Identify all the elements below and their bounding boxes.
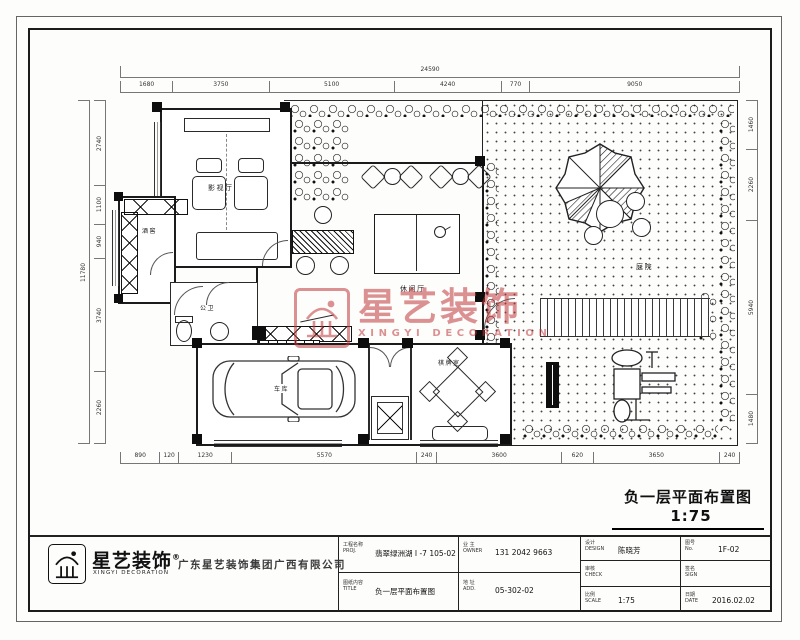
outdoor-chair-icon <box>632 218 651 237</box>
room-label-garage: 车库 <box>272 384 291 393</box>
toilet-icon <box>176 320 192 342</box>
outdoor-table-icon <box>596 200 624 228</box>
tb-label: 图纸内容TITLE <box>343 580 363 592</box>
sink-icon <box>210 322 229 341</box>
dim-top-overall: 24590 <box>120 66 740 78</box>
tb-value-number: 1F-02 <box>718 545 739 554</box>
company-wordmark-en: XINGYI DECORATION <box>93 570 169 576</box>
dim-top-segments: 16803750510042407709050 <box>120 81 740 93</box>
window-icon <box>420 440 498 447</box>
cabinet-icon <box>432 426 488 441</box>
tb-label: 设计DESIGN <box>585 540 604 552</box>
dim-right-segments: 1460226059401480 <box>746 100 758 444</box>
armchair-icon <box>196 158 222 173</box>
bar-stool-icon <box>314 206 332 224</box>
tb-value-designer: 陈晓芳 <box>618 545 641 556</box>
wine-rack-icon <box>124 199 188 215</box>
site-boundary-top <box>284 100 484 101</box>
dim-left-segments: 2740110094037402260 <box>94 100 106 444</box>
tb-value-address: 05-302-02 <box>495 586 534 595</box>
outdoor-chair-icon <box>584 226 603 245</box>
tb-value-scale: 1:75 <box>618 596 635 605</box>
room-label-lounge: 休闲厅 <box>400 284 426 294</box>
tb-label: 比例SCALE <box>585 592 601 604</box>
tb-label: 审核CHECK <box>585 566 602 578</box>
garage-door-icon <box>214 440 342 447</box>
tb-label: 工程名称PROJ. <box>343 542 363 554</box>
pergola-deck-icon <box>540 298 710 337</box>
sheet-title-text: 负一层平面布置图 <box>624 488 752 506</box>
tb-value-owner: 131 2042 9663 <box>495 548 552 557</box>
outdoor-chair-icon <box>626 192 645 211</box>
projector-screen-icon <box>184 118 270 132</box>
room-label-cellar: 酒窖 <box>142 226 157 235</box>
company-name: 广东星艺装饰集团广西有限公司 <box>178 557 346 572</box>
bar-stool-icon <box>296 256 315 275</box>
room-label-media: 影视厅 <box>208 183 234 193</box>
tb-label: 地 址ADD. <box>463 580 476 592</box>
tb-value-project: 翡翠绿洲湖 I -7 105-02 <box>375 548 456 559</box>
gym-machine-icon <box>592 344 678 426</box>
plants-right-icon <box>718 117 735 429</box>
tb-value-title: 负一层平面布置图 <box>375 586 435 597</box>
company-wordmark-cn: 星艺装饰® <box>92 546 181 573</box>
wine-rack-icon <box>121 212 138 294</box>
sheet-title: 负一层平面布置图 1:75 <box>612 486 764 530</box>
company-logo-icon <box>48 544 86 584</box>
drawing-sheet: 24590 16803750510042407709050 8901201230… <box>0 0 800 640</box>
window-icon <box>112 210 119 286</box>
dim-left-overall: 11780 <box>78 100 90 444</box>
window-icon <box>154 122 161 196</box>
sheet-scale: 1:75 <box>670 507 711 525</box>
tb-label: 日期DATE <box>685 592 698 604</box>
tb-label: 图号No. <box>685 540 695 552</box>
dim-bottom-segments: 8901201230557024036006203650240 <box>120 452 740 464</box>
tb-label: 业 主OWNER <box>463 542 482 554</box>
bar-stool-icon <box>330 256 349 275</box>
bar-counter-icon <box>292 230 354 254</box>
armchair-icon <box>238 158 264 173</box>
kettle-icon <box>434 226 446 238</box>
tb-label: 签名SIGN <box>685 566 697 578</box>
plants-top-icon <box>288 102 734 117</box>
table-tennis-table-icon <box>374 214 460 274</box>
room-label-yard: 庭院 <box>636 262 653 272</box>
tb-value-date: 2016.02.02 <box>712 596 755 605</box>
room-label-chess: 棋牌室 <box>438 358 461 367</box>
